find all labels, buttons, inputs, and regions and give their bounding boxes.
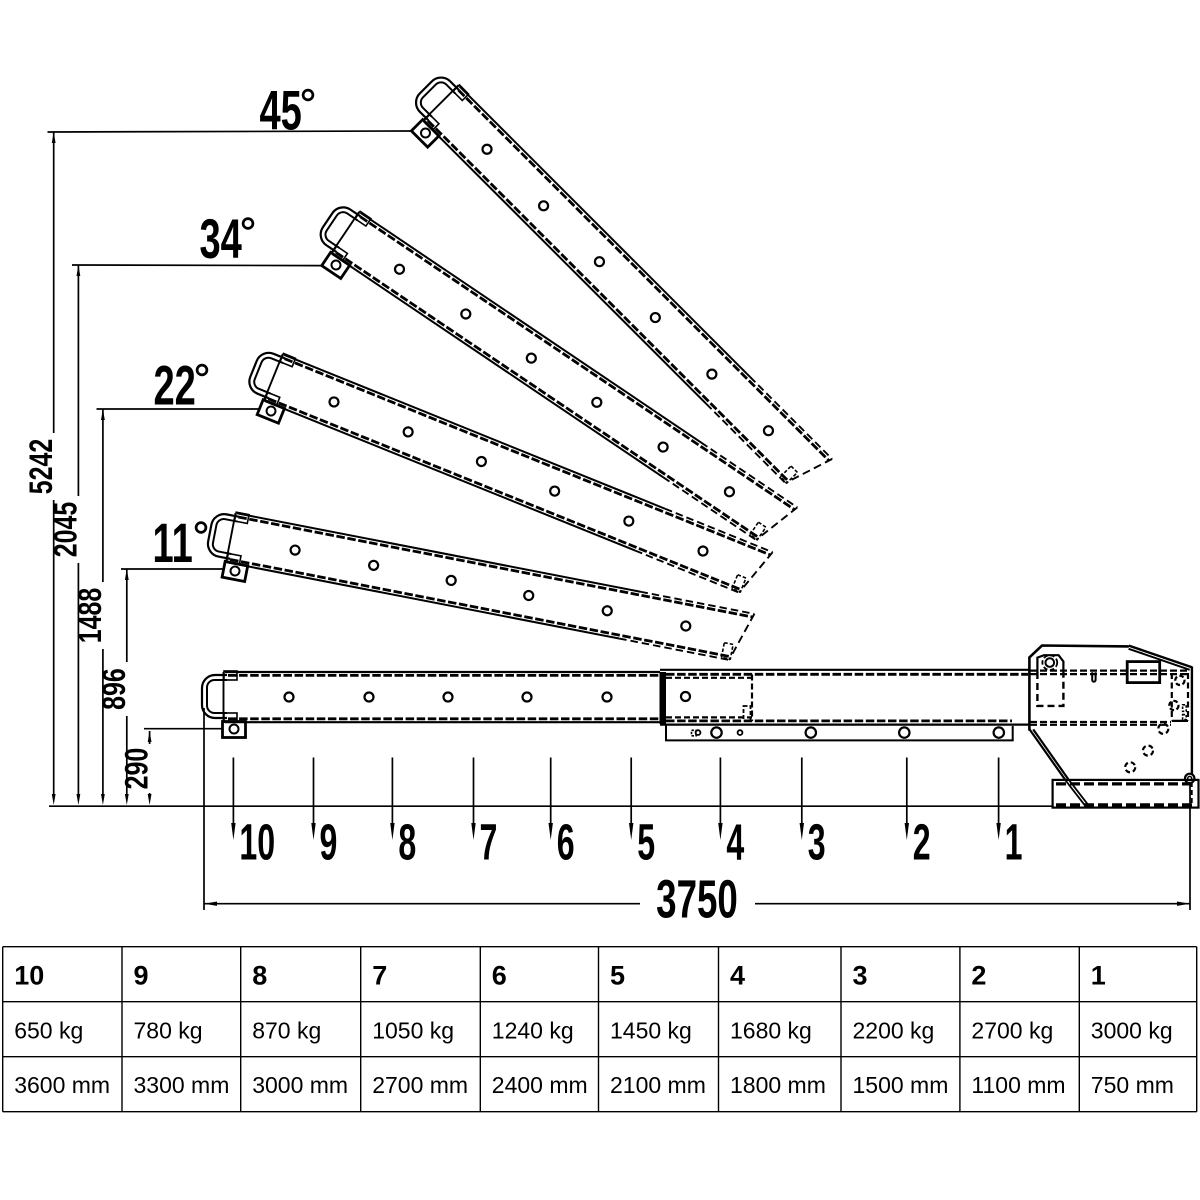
svg-text:870 kg: 870 kg (252, 1018, 321, 1044)
svg-text:1450 kg: 1450 kg (610, 1018, 692, 1044)
svg-text:2700 kg: 2700 kg (971, 1018, 1053, 1044)
svg-text:22: 22 (154, 355, 196, 417)
svg-text:10: 10 (239, 814, 275, 871)
svg-text:3: 3 (808, 814, 826, 871)
svg-text:45: 45 (260, 80, 302, 142)
svg-text:9: 9 (134, 961, 149, 991)
svg-text:1680 kg: 1680 kg (730, 1018, 812, 1044)
svg-text:3000 mm: 3000 mm (252, 1072, 348, 1098)
svg-text:2400 mm: 2400 mm (492, 1072, 588, 1098)
svg-text:896: 896 (97, 668, 133, 710)
svg-text:4: 4 (730, 961, 745, 991)
svg-text:3750: 3750 (656, 868, 738, 929)
svg-text:1: 1 (1091, 961, 1106, 991)
svg-text:1800 mm: 1800 mm (730, 1072, 826, 1098)
svg-text:9: 9 (320, 814, 338, 871)
svg-text:5242: 5242 (24, 439, 60, 495)
svg-text:3: 3 (853, 961, 868, 991)
svg-text:8: 8 (398, 814, 416, 871)
svg-text:4: 4 (726, 814, 744, 871)
svg-text:2045: 2045 (49, 502, 85, 558)
svg-text:10: 10 (14, 961, 44, 991)
svg-text:8: 8 (252, 961, 267, 991)
svg-text:2700 mm: 2700 mm (372, 1072, 468, 1098)
svg-text:780 kg: 780 kg (134, 1018, 203, 1044)
svg-text:2100 mm: 2100 mm (610, 1072, 706, 1098)
svg-text:5: 5 (637, 814, 655, 871)
svg-text:2200 kg: 2200 kg (853, 1018, 935, 1044)
svg-text:750 mm: 750 mm (1091, 1072, 1174, 1098)
svg-text:3600 mm: 3600 mm (14, 1072, 110, 1098)
svg-text:1: 1 (1005, 814, 1023, 871)
svg-text:290: 290 (120, 748, 156, 790)
svg-text:6: 6 (492, 961, 507, 991)
svg-text:3000 kg: 3000 kg (1091, 1018, 1173, 1044)
svg-text:34: 34 (200, 209, 243, 271)
svg-text:1488: 1488 (73, 588, 109, 644)
svg-text:2: 2 (913, 814, 931, 871)
svg-text:2: 2 (971, 961, 986, 991)
svg-text:1500 mm: 1500 mm (853, 1072, 949, 1098)
svg-text:1050 kg: 1050 kg (372, 1018, 454, 1044)
svg-text:7: 7 (480, 814, 498, 871)
svg-text:3300 mm: 3300 mm (134, 1072, 230, 1098)
svg-text:650 kg: 650 kg (14, 1018, 83, 1044)
svg-text:7: 7 (372, 961, 387, 991)
svg-text:11: 11 (153, 513, 193, 575)
svg-text:6: 6 (557, 814, 575, 871)
svg-text:1100 mm: 1100 mm (971, 1072, 1065, 1098)
svg-text:1240 kg: 1240 kg (492, 1018, 574, 1044)
svg-text:5: 5 (610, 961, 625, 991)
